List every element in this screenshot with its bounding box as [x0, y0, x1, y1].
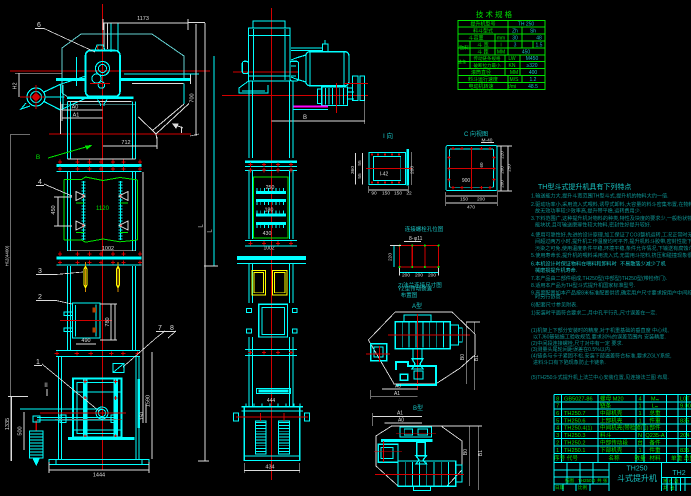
- svg-text:单重 总重: 单重 总重: [671, 454, 691, 462]
- svg-text:A1: A1: [397, 411, 403, 417]
- svg-text:链条: 链条: [458, 59, 467, 66]
- svg-text:MM: MM: [497, 49, 505, 55]
- svg-text:434: 434: [265, 465, 274, 471]
- svg-text:60: 60: [479, 162, 484, 168]
- svg-text:1120: 1120: [96, 206, 110, 212]
- svg-text:数量: 数量: [634, 454, 646, 462]
- svg-text:连接螺栓孔位图: 连接螺栓孔位图: [405, 225, 444, 233]
- svg-text:200: 200: [415, 273, 423, 279]
- svg-text:430: 430: [263, 231, 272, 237]
- svg-text:技 术 规 格: 技 术 规 格: [476, 9, 513, 19]
- svg-text:共: 共: [663, 485, 668, 492]
- svg-text:进料斗口有下陷现象防止卡链条.: 进料斗口有下陷现象防止卡链条.: [533, 359, 606, 366]
- svg-text:48: 48: [536, 36, 542, 42]
- svg-text:中间机壳(带检修门): 中间机壳(带检修门): [600, 424, 649, 432]
- svg-text:l: l: [500, 42, 501, 48]
- svg-text:(1)机架上下部分安装时的精度,对于机重基础的垂直度 中心线: (1)机架上下部分安装时的精度,对于机重基础的垂直度 中心线,: [531, 327, 669, 334]
- svg-text:444: 444: [267, 398, 276, 404]
- svg-text:55: 55: [357, 173, 363, 179]
- svg-text:7: 7: [556, 404, 559, 410]
- svg-text:A型: A型: [412, 302, 422, 310]
- svg-text:835: 835: [680, 418, 689, 424]
- svg-text:描图: 描图: [565, 477, 574, 484]
- svg-text:故无效功率较少效率高,提升带平稳,运转费用少.: 故无效功率较少效率高,提升带平稳,运转费用少.: [535, 208, 641, 215]
- svg-text:8: 8: [556, 396, 559, 402]
- svg-text:螺母 M20: 螺母 M20: [600, 394, 624, 402]
- svg-text:4: 4: [638, 396, 641, 402]
- svg-text:TH250.7: TH250.7: [564, 411, 585, 417]
- svg-text:TH250.1: TH250.1: [564, 448, 585, 454]
- svg-text:360: 360: [350, 166, 356, 174]
- svg-text:3: 3: [556, 433, 559, 439]
- svg-text:B型: B型: [413, 404, 423, 412]
- svg-text:22: 22: [406, 191, 412, 197]
- svg-text:(5)TH250斗式提升机上法兰中心安装位置,见连接法兰图: (5)TH250斗式提升机上法兰中心安装位置,见连接法兰图 布局.: [531, 374, 669, 381]
- svg-text:90: 90: [371, 191, 377, 197]
- svg-text:470: 470: [467, 205, 475, 211]
- svg-text:3: 3: [38, 268, 42, 275]
- svg-text:上部机壳: 上部机壳: [600, 416, 623, 424]
- svg-text:835: 835: [680, 448, 689, 454]
- svg-text:A1: A1: [73, 113, 80, 119]
- svg-text:mm: mm: [497, 36, 505, 42]
- svg-text:I-42: I-42: [380, 172, 389, 178]
- svg-text:破断拉力最小: 破断拉力最小: [474, 62, 501, 69]
- svg-text:55: 55: [357, 160, 363, 166]
- svg-text:第: 第: [663, 478, 668, 485]
- svg-text:1: 1: [638, 418, 641, 424]
- svg-text:中部传动段: 中部传动段: [600, 438, 628, 446]
- svg-text:(2)中间段连接螺栓,尺寸对中有一定 要求.: (2)中间段连接螺栓,尺寸对中有一定 要求.: [531, 340, 623, 347]
- svg-text:200: 200: [500, 166, 505, 174]
- svg-text:TH250.3: TH250.3: [564, 433, 585, 439]
- svg-text:LW: LW: [508, 56, 515, 62]
- svg-text:TH250.2: TH250.2: [564, 440, 585, 446]
- svg-text:MM: MM: [510, 70, 518, 76]
- svg-text:A0: A0: [398, 418, 404, 424]
- svg-text:500: 500: [18, 426, 24, 435]
- svg-text:TH 250: TH 250: [518, 22, 535, 28]
- svg-text:1335: 1335: [5, 418, 11, 430]
- svg-text:TH250.6: TH250.6: [564, 418, 585, 424]
- svg-text:780: 780: [105, 317, 111, 326]
- svg-text:I 向: I 向: [383, 131, 393, 140]
- svg-text:≥320: ≥320: [526, 63, 537, 69]
- svg-text:KN: KN: [509, 63, 516, 69]
- svg-text:2: 2: [38, 294, 42, 301]
- svg-text:3: 3: [514, 42, 517, 48]
- svg-text:900: 900: [462, 178, 471, 184]
- svg-text:3.下料范围广,这种提升机对物料的种类,特性及块度的要求少,: 3.下料范围广,这种提升机对物料的种类,特性及块度的要求少,一般粉状物料颗粒状,…: [531, 215, 691, 222]
- svg-text:4: 4: [38, 179, 42, 186]
- svg-text:200: 200: [477, 197, 485, 203]
- svg-text:204: 204: [680, 433, 689, 439]
- svg-text:220: 220: [388, 253, 394, 261]
- svg-text:8: 8: [170, 325, 174, 332]
- svg-text:链条: 链条: [600, 402, 612, 410]
- svg-text:料斗运行速度: 料斗运行速度: [468, 76, 498, 83]
- svg-text:台: 台: [637, 438, 643, 446]
- svg-text:GB5027-86: GB5027-86: [564, 396, 593, 402]
- svg-text:TH250.4(1): TH250.4(1): [564, 426, 592, 432]
- svg-text:1: 1: [638, 411, 641, 417]
- svg-text:材料: 材料: [649, 454, 661, 462]
- svg-text:7.本产品由二部件组成,TH250型(中部型)TH250型(: 7.本产品由二部件组成,TH250型(中部型)TH250型(带检修门).: [531, 275, 667, 282]
- svg-text:200: 200: [500, 180, 505, 188]
- svg-text:r/mi: r/mi: [508, 84, 516, 90]
- svg-text:提升机型号: 提升机型号: [470, 21, 495, 28]
- svg-text:污染之可免,使用温度条件平稳,环境平稳,条件允许情况,下输送: 污染之可免,使用温度条件平稳,环境平稳,条件允许情况,下输送有腐蚀介: [535, 245, 691, 252]
- svg-text:滚筒直径: 滚筒直径: [471, 69, 491, 76]
- svg-text:220: 220: [500, 151, 505, 159]
- svg-text:490: 490: [81, 338, 90, 344]
- svg-text:1.2: 1.2: [530, 77, 537, 83]
- svg-text:(4)链条与卡子紧固不松,安装下部温差符合标准,要求ZGLY: (4)链条与卡子紧固不松,安装下部温差符合标准,要求ZGLY系统,: [531, 353, 672, 360]
- svg-text:1: 1: [36, 359, 40, 366]
- svg-text:6: 6: [556, 411, 559, 417]
- svg-text:150: 150: [140, 412, 146, 421]
- svg-text:传动链条规格: 传动链条规格: [474, 55, 501, 62]
- svg-text:200: 200: [428, 273, 436, 279]
- svg-text:1173: 1173: [137, 16, 149, 22]
- svg-text:B1: B1: [478, 450, 484, 456]
- svg-text:250: 250: [507, 164, 512, 172]
- svg-text:TH2: TH2: [672, 470, 685, 477]
- svg-text:1.输送能力大,提升斗宽范围TH型斗式,提升机的物料大约一倍: 1.输送能力大,提升斗宽范围TH型斗式,提升机的物料大约一倍.: [531, 193, 669, 200]
- svg-text:1444: 1444: [93, 473, 105, 479]
- svg-text:Q235-A: Q235-A: [645, 433, 665, 439]
- svg-text:N: N: [638, 433, 642, 439]
- svg-text:中部机壳: 中部机壳: [600, 409, 623, 417]
- svg-text:件重: 件重: [649, 446, 661, 454]
- svg-text:总重: 总重: [649, 409, 661, 417]
- svg-text:1: 1: [638, 404, 641, 410]
- svg-text:1)安装时平面符合要求二,月中孔平行孔,尺寸误差在一定.: 1)安装时平面符合要求二,月中孔平行孔,尺寸误差在一定.: [531, 309, 657, 316]
- svg-text:1.5: 1.5: [536, 42, 543, 48]
- svg-text:180: 180: [265, 208, 274, 214]
- svg-text:II: II: [44, 382, 48, 389]
- svg-text:700: 700: [190, 93, 196, 102]
- svg-text:48.5: 48.5: [528, 84, 538, 90]
- svg-text:TH型斗式提升机具有下列特点: TH型斗式提升机具有下列特点: [538, 182, 631, 191]
- svg-text:712: 712: [121, 140, 130, 146]
- svg-text:1: 1: [638, 448, 641, 454]
- svg-text:A0: A0: [72, 105, 79, 111]
- svg-text:A1: A1: [394, 391, 400, 397]
- svg-text:能块状,且可输送磨琢性较大物料,密封性好提升较好.: 能块状,且可输送磨琢性较大物料,密封性好提升较好.: [535, 222, 651, 229]
- svg-text:B: B: [36, 154, 40, 161]
- svg-text:件重: 件重: [649, 416, 661, 424]
- svg-text:2: 2: [556, 440, 559, 446]
- svg-text:YZ型传动装置: YZ型传动装置: [398, 285, 433, 293]
- svg-text:L0T: L0T: [680, 396, 690, 402]
- svg-text:4: 4: [556, 426, 559, 432]
- svg-text:间超过两万小时,提升机工作温度均可平齐,提升机料斗胶带,密封: 间超过两万小时,提升机工作温度均可平齐,提升机料斗胶带,密封性能下工作场所的粉尘: [535, 238, 691, 245]
- svg-text:9.00: 9.00: [680, 404, 691, 410]
- svg-text:400: 400: [529, 70, 538, 76]
- svg-text:B1: B1: [474, 355, 480, 361]
- svg-text:B: B: [303, 115, 307, 121]
- svg-text:Mₘ: Mₘ: [651, 396, 660, 402]
- svg-text:450: 450: [522, 49, 531, 55]
- svg-text:时另行协商.: 时另行协商.: [535, 294, 562, 301]
- svg-text:280: 280: [410, 166, 416, 174]
- svg-text:以TJ60基础施工验收规范,要求30%的误差范围内 安装精度: 以TJ60基础施工验收规范,要求30%的误差范围内 安装精度.: [533, 334, 666, 341]
- svg-text:张: 张: [670, 485, 675, 492]
- svg-text:电动机转速: 电动机转速: [468, 83, 493, 90]
- svg-text:名称: 名称: [608, 454, 620, 462]
- svg-text:斗 距: 斗 距: [477, 49, 488, 55]
- svg-text:Lₘ: Lₘ: [652, 404, 659, 410]
- svg-text:不易散落少减少了机: 不易散落少减少了机: [620, 261, 666, 268]
- svg-text:6.本机设计时保证物料在喂料和卸料时: 6.本机设计时保证物料在喂料和卸料时: [531, 261, 617, 268]
- svg-text:布置图: 布置图: [401, 291, 418, 299]
- svg-text:Sh: Sh: [530, 29, 536, 35]
- svg-text:械磨损提升机寿命.: 械磨损提升机寿命.: [535, 267, 577, 274]
- svg-text:Zh: Zh: [512, 29, 518, 35]
- svg-text:张: 张: [674, 478, 679, 485]
- svg-text:M450: M450: [526, 56, 539, 62]
- svg-text:150: 150: [394, 191, 402, 197]
- svg-text:比例: 比例: [578, 484, 587, 491]
- svg-text:(3)测量头尾轮间距误差在0.5%以内.: (3)测量头尾轮间距误差在0.5%以内.: [531, 346, 611, 353]
- svg-text:A0: A0: [395, 384, 401, 390]
- svg-text:2.驱动功率小,采用流入式喂料,诱导式卸料,大容量的料斗密集: 2.驱动功率小,采用流入式喂料,诱导式卸料,大容量的料斗密集布置,在物料提升时一…: [531, 201, 691, 208]
- svg-text:斗 宽: 斗 宽: [477, 41, 488, 48]
- svg-text:450: 450: [51, 205, 57, 214]
- svg-text:150: 150: [382, 191, 390, 197]
- svg-text:5.使用寿命长,提升机的喂料采用流入式,无需用斗挖料,挤压和: 5.使用寿命长,提升机的喂料采用流入式,无需用斗挖料,挤压和碰撞现象很少发生,本…: [531, 252, 691, 259]
- svg-text:φ11: φ11: [414, 236, 423, 242]
- svg-text:斗式提升机: 斗式提升机: [617, 473, 657, 483]
- svg-text:30: 30: [512, 36, 518, 42]
- svg-text:下部机壳: 下部机壳: [600, 446, 623, 454]
- svg-text:8.适用本产品为TH型斗式提升机国家标准型号.: 8.适用本产品为TH型斗式提升机国家标准型号.: [531, 282, 635, 289]
- svg-text:物料: 物料: [459, 45, 469, 52]
- svg-text:250: 250: [266, 185, 275, 191]
- svg-text:B0: B0: [460, 354, 466, 360]
- svg-text:6: 6: [37, 22, 41, 29]
- svg-text:备件: 备件: [649, 438, 661, 446]
- svg-text:200: 200: [402, 273, 410, 279]
- svg-text:料斗: 料斗: [600, 431, 612, 439]
- svg-text:TH250.0: TH250.0: [578, 478, 596, 483]
- svg-text:150: 150: [460, 197, 468, 203]
- svg-text:H2: H2: [13, 82, 19, 89]
- svg-text:H以(4400): H以(4400): [5, 245, 10, 266]
- svg-text:6)配套尺寸参见附表.: 6)配套尺寸参见附表.: [531, 302, 578, 309]
- svg-text:C 向视图: C 向视图: [464, 130, 488, 138]
- svg-text:共 张: 共 张: [597, 477, 608, 484]
- svg-text:料斗型式: 料斗型式: [473, 28, 493, 35]
- svg-text:B0: B0: [463, 449, 469, 455]
- svg-text:7: 7: [158, 325, 162, 332]
- svg-text:部件: 部件: [649, 424, 661, 432]
- svg-text:序号 代号: 序号 代号: [554, 454, 578, 462]
- svg-text:TH250: TH250: [626, 466, 647, 473]
- svg-text:斗容量: 斗容量: [468, 35, 483, 42]
- svg-text:4.使用可靠性好,先进的设计原理,加工保证了CO3整机运转,: 4.使用可靠性好,先进的设计原理,加工保证了CO3整机运转,工况正常时无故障时: [531, 231, 691, 238]
- svg-text:M/S: M/S: [510, 77, 520, 83]
- svg-text:1: 1: [556, 448, 559, 454]
- svg-text:5: 5: [556, 418, 559, 424]
